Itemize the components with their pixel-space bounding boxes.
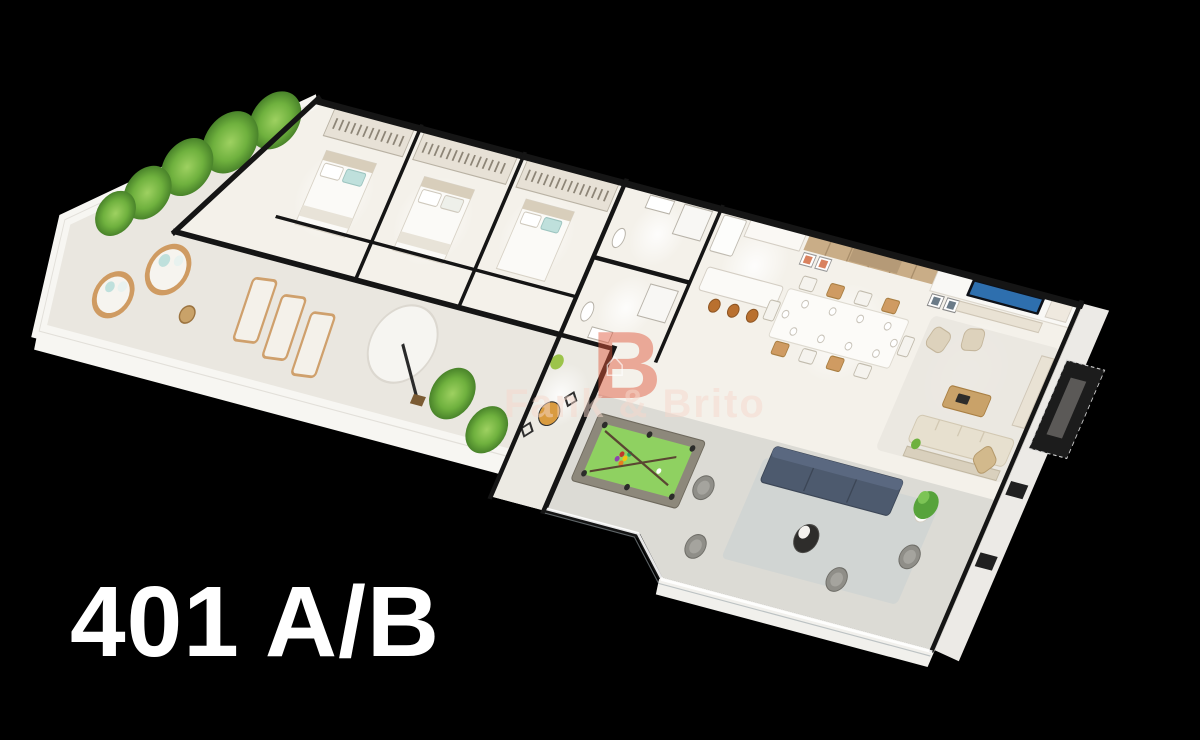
floor-plan-scene: B ⌂ Fank & Brito 401 A/B [0, 0, 1200, 740]
unit-label: 401 A/B [70, 572, 440, 672]
watermark-text: Fank & Brito [504, 382, 766, 427]
watermark-house-icon: ⌂ [604, 346, 626, 382]
